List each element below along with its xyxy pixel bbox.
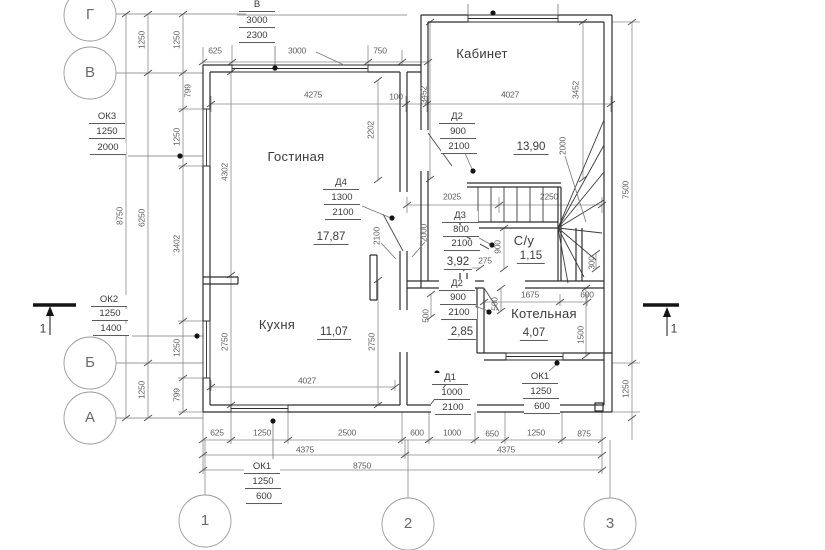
tag-d2-low: Д2 (439, 279, 475, 291)
tag-ok2-height: 1400 (93, 324, 129, 336)
tag-ok3-width: 1250 (89, 127, 125, 139)
tag-ok2: ОК2 (91, 295, 127, 307)
dim-4302: 4302 (221, 163, 230, 181)
tag-d2-top-width: 900 (440, 127, 476, 139)
dim-2250: 2250 (540, 193, 558, 202)
dim-2750-left: 2750 (221, 333, 230, 351)
dim-7500: 7500 (622, 181, 631, 199)
label-layer: ГВБА12311ГостинаяКухняКабинетКотельнаяС/… (0, 0, 825, 550)
room-label-kabinet: Кабинет (456, 47, 508, 61)
dim-4275: 4275 (304, 91, 322, 100)
tag-d4-height: 2100 (325, 208, 361, 220)
tag-ok3-height: 2000 (90, 143, 126, 155)
room-label-su: С/у (514, 234, 534, 248)
tag-d4-width: 1300 (324, 193, 360, 205)
area-kuhnya: 11,07 (317, 326, 351, 340)
tag-d3: Д3 (442, 211, 478, 223)
room-label-kotelnaya: Котельная (511, 307, 577, 321)
tag-d2-low-width: 900 (440, 293, 476, 305)
dim-900-su: 900 (494, 240, 503, 254)
tag-ok1-right-height: 600 (524, 402, 560, 414)
area-su: 1,15 (517, 250, 545, 264)
axis-label-b: Б (85, 355, 95, 371)
axis-label-v: В (85, 65, 95, 81)
tag-ok1-bottom: ОК1 (244, 462, 280, 474)
dim-600-bottom: 600 (410, 429, 424, 438)
dim-799-top: 799 (184, 84, 193, 98)
dim-1250-right: 1250 (622, 380, 631, 398)
tag-ok3: ОК3 (89, 112, 125, 124)
dim-600-kot: 600 (580, 291, 594, 300)
dim-3452-left: 3452 (420, 86, 429, 104)
area-kabinet: 13,90 (514, 141, 549, 155)
axis-label-2: 2 (404, 516, 412, 532)
dim-500-su: 500 (491, 297, 500, 311)
tag-window-v: В (239, 0, 275, 12)
tag-d3-width: 800 (443, 225, 479, 237)
dim-3402: 3402 (173, 235, 182, 253)
dim-500-kitchen: 500 (422, 309, 431, 323)
dim-4375-left: 4375 (296, 446, 314, 455)
dim-1250-ok3: 1250 (173, 128, 182, 146)
dim-3452-right: 3452 (572, 81, 581, 99)
tag-d2-low-height: 2100 (441, 308, 477, 320)
dim-1250-ba: 1250 (138, 381, 147, 399)
tag-window-v-height: 2300 (239, 31, 275, 43)
area-kotelnaya: 4,07 (520, 327, 548, 341)
dim-799-bottom: 799 (173, 388, 182, 402)
tag-d1-width: 1000 (434, 388, 470, 400)
area-hall: 3,92 (444, 256, 472, 270)
axis-label-1: 1 (201, 513, 209, 529)
dim-275: 275 (478, 257, 492, 266)
dim-1500: 1500 (577, 326, 586, 344)
section-mark-1-right: 1 (671, 323, 678, 336)
tag-d2-top: Д2 (439, 112, 475, 124)
tag-ok1-bottom-height: 600 (246, 492, 282, 504)
dim-2202: 2202 (367, 121, 376, 139)
tag-ok2-width: 1250 (92, 309, 128, 321)
dim-625-bottom: 625 (210, 429, 224, 438)
room-label-kuhnya: Кухня (259, 318, 295, 332)
dim-1675: 1675 (521, 291, 539, 300)
tag-d1-height: 2100 (435, 403, 471, 415)
section-mark-1-left: 1 (40, 323, 47, 336)
dim-4375-right: 4375 (497, 446, 515, 455)
dim-1250-bottom: 1250 (253, 429, 271, 438)
room-label-gostinaya: Гостиная (268, 150, 325, 164)
dim-8750-left: 8750 (116, 207, 125, 225)
dim-4027-kitchen: 4027 (298, 377, 316, 386)
dim-2000-stairs: 2000 (559, 137, 568, 155)
dim-3000: 3000 (288, 47, 306, 56)
dim-2100-mid: 2100 (373, 227, 382, 245)
tag-d4: Д4 (323, 178, 359, 190)
dim-1250-gv-2: 1250 (173, 31, 182, 49)
dim-1250-ok2: 1250 (173, 339, 182, 357)
tag-d3-height: 2100 (444, 239, 480, 251)
dim-1000-bottom: 1000 (443, 429, 461, 438)
dim-2025: 2025 (443, 193, 461, 202)
tag-window-v-width: 3000 (239, 16, 275, 28)
tag-ok1-right: ОК1 (522, 372, 558, 384)
dim-750: 750 (373, 47, 387, 56)
dim-875-bottom: 875 (577, 430, 591, 439)
dim-2750-right: 2750 (368, 333, 377, 351)
tag-ok1-right-width: 1250 (523, 387, 559, 399)
dim-650-bottom: 650 (485, 430, 499, 439)
area-corridor: 2,85 (448, 326, 476, 340)
dim-625: 625 (208, 47, 222, 56)
tag-d1: Д1 (432, 373, 468, 385)
axis-label-3: 3 (606, 516, 614, 532)
dim-100: 100 (389, 93, 403, 102)
axis-label-g: Г (86, 7, 94, 23)
dim-1250b-bottom: 1250 (527, 429, 545, 438)
tag-d2-top-height: 2100 (441, 142, 477, 154)
dim-300: 300 (588, 256, 597, 270)
tag-ok1-bottom-width: 1250 (245, 477, 281, 489)
dim-2500-bottom: 2500 (338, 429, 356, 438)
dim-8750-bottom: 8750 (353, 462, 371, 471)
axis-label-a: А (85, 410, 95, 426)
dim-1250-gv-1: 1250 (138, 31, 147, 49)
dim-2000-mid: 2000 (420, 224, 429, 242)
area-gostinaya: 17,87 (314, 231, 349, 245)
dim-6250: 6250 (138, 209, 147, 227)
dim-4027: 4027 (501, 91, 519, 100)
floor-plan-canvas: ГВБА12311ГостинаяКухняКабинетКотельнаяС/… (0, 0, 825, 550)
